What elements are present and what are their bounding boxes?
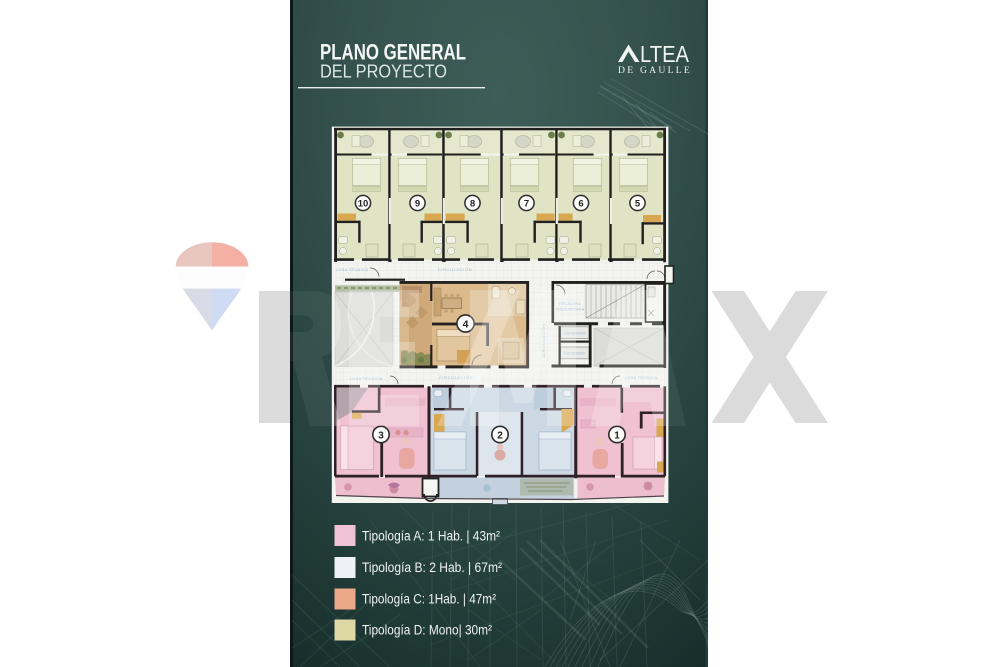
svg-text:7: 7 (524, 199, 529, 210)
svg-text:CIRCULACIÓN: CIRCULACIÓN (438, 267, 472, 272)
svg-text:Tipología D: Mono| 30m²: Tipología D: Mono| 30m² (362, 623, 492, 638)
svg-text:DEL PROYECTO: DEL PROYECTO (320, 62, 447, 82)
svg-text:LTEA: LTEA (640, 41, 689, 67)
svg-text:Tipología C: 1Hab. | 47m²: Tipología C: 1Hab. | 47m² (362, 592, 496, 607)
svg-text:3: 3 (378, 430, 384, 441)
svg-text:LOSA TÉCNICA: LOSA TÉCNICA (336, 267, 369, 272)
svg-text:9: 9 (415, 199, 420, 210)
svg-text:Tipología B: 2 Hab. | 67m²: Tipología B: 2 Hab. | 67m² (362, 560, 502, 575)
svg-text:10: 10 (358, 199, 369, 210)
svg-text:Tipología A: 1 Hab. | 43m²: Tipología A: 1 Hab. | 43m² (362, 529, 500, 544)
svg-text:DE GAULLE: DE GAULLE (618, 66, 692, 76)
svg-text:2: 2 (497, 430, 503, 441)
svg-text:5: 5 (635, 199, 641, 210)
svg-text:4: 4 (463, 318, 469, 330)
svg-text:1: 1 (614, 430, 620, 441)
svg-text:8: 8 (470, 199, 475, 210)
svg-text:6: 6 (578, 199, 583, 210)
